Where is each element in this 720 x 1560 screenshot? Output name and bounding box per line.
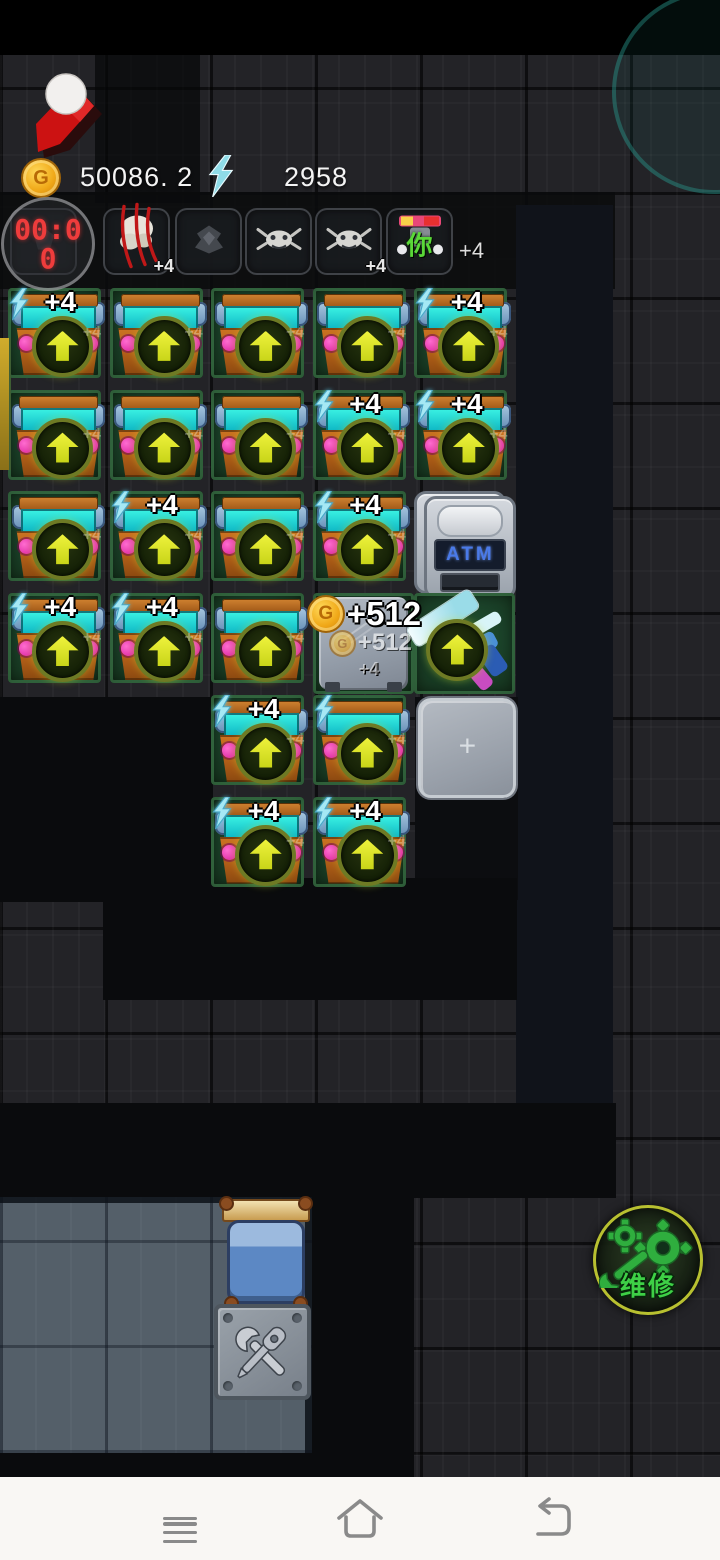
- chest-cell-r1c3[interactable]: +4: [211, 288, 304, 378]
- coin-counter: 50086. 2: [80, 162, 193, 193]
- boss-glyph: 你: [406, 226, 432, 263]
- atm-screen: ATM: [434, 539, 506, 571]
- chest-watermark: +4: [286, 731, 304, 749]
- chest-cell-r3c4[interactable]: +4 +4: [313, 491, 406, 581]
- lightning-icon: [313, 797, 335, 834]
- up-arrow-icon: [250, 433, 282, 463]
- cell-plus-label: +4: [44, 591, 76, 623]
- cell-plus-label: +4: [451, 388, 483, 420]
- chest-watermark: +4: [184, 426, 202, 444]
- up-arrow-icon: [351, 738, 383, 768]
- chest-watermark: +4: [388, 833, 406, 851]
- item-slot-3[interactable]: [175, 208, 242, 275]
- cell-plus-label: +4: [451, 286, 483, 318]
- upgrade-chest-sprite: +4: [317, 294, 410, 384]
- upgrade-chest-sprite: +4: [12, 396, 105, 486]
- chest-cell-r1c1[interactable]: +4 +4: [8, 288, 101, 378]
- chest-watermark: +4: [286, 426, 304, 444]
- chest-cell-r2c5[interactable]: +4 +4: [414, 390, 507, 480]
- chest-watermark: +4: [184, 324, 202, 342]
- chest-watermark: +4: [388, 527, 406, 545]
- chest-watermark: +4: [388, 324, 406, 342]
- chest-cell-r3c3[interactable]: +4: [211, 491, 304, 581]
- crab-monster-icon: [256, 219, 302, 264]
- atm-cash-slot: [440, 573, 500, 592]
- chest-cell-r1c2[interactable]: +4: [110, 288, 203, 378]
- lightning-icon: [110, 593, 132, 630]
- repair-label: 维修: [620, 1266, 676, 1303]
- upgrade-chest-sprite: +4: [215, 294, 308, 384]
- up-arrow-icon: [148, 331, 180, 361]
- cell-plus-label: +4: [44, 286, 76, 318]
- chest-cell-r1c4[interactable]: +4: [313, 288, 406, 378]
- energy-bolt-icon: [206, 155, 236, 197]
- chest-cell-r6c4[interactable]: +4 +4: [313, 797, 406, 887]
- cell-plus-label: +4: [247, 693, 279, 725]
- plus-icon: +: [459, 729, 477, 763]
- lightning-icon: [313, 390, 335, 427]
- atm-cell-r3c5[interactable]: ATM: [414, 491, 506, 594]
- coin-icon: G: [21, 158, 61, 198]
- atm-machine: ATM: [424, 496, 516, 599]
- up-arrow-icon: [441, 634, 473, 664]
- upgrade-chest-sprite: +4: [12, 497, 105, 587]
- back-icon: [527, 1497, 573, 1541]
- cell-plus-label: +4: [349, 795, 381, 827]
- chest-watermark: +4: [184, 629, 202, 647]
- corridor-bottom-left: [0, 1103, 616, 1198]
- up-arrow-icon: [250, 534, 282, 564]
- bed-headboard: [222, 1199, 310, 1222]
- chest-cell-r3c2[interactable]: +4 +4: [110, 491, 203, 581]
- upgrade-chest-sprite: +4: [114, 294, 207, 384]
- crystal-upgrade-item: [414, 593, 515, 694]
- upgrade-chest-sprite: +4: [114, 396, 207, 486]
- up-arrow-icon: [250, 331, 282, 361]
- android-nav-bar: [0, 1477, 720, 1560]
- chest-watermark: +4: [83, 426, 101, 444]
- lightning-icon: [8, 593, 30, 630]
- cell-plus-label: +4: [349, 489, 381, 521]
- up-arrow-icon: [47, 534, 79, 564]
- repair-button[interactable]: 维修: [593, 1205, 703, 1315]
- empty-placement-tile: +: [418, 698, 516, 798]
- upgrade-chest-sprite: +4: [215, 599, 308, 689]
- item-slot-2[interactable]: +4: [103, 208, 170, 275]
- chest-watermark: +4: [388, 426, 406, 444]
- cell-plus-label: +4: [247, 795, 279, 827]
- up-arrow-icon: [351, 433, 383, 463]
- up-arrow-icon: [148, 433, 180, 463]
- game-screen: G 50086. 2 2958 00:00 +4+4你 +4 +4 +4 +4: [0, 0, 720, 1560]
- upgrade-chest-sprite: +4: [215, 396, 308, 486]
- home-button[interactable]: [300, 1477, 420, 1560]
- cell-plus-label: +4: [349, 388, 381, 420]
- up-arrow-icon: [148, 636, 180, 666]
- chest-cell-r6c3[interactable]: +4 +4: [211, 797, 304, 887]
- chest-cell-r2c3[interactable]: +4: [211, 390, 304, 480]
- coin-icon: G: [329, 630, 356, 657]
- chest-watermark: +4: [286, 629, 304, 647]
- upgrade-chest-sprite: +4: [215, 497, 308, 587]
- corridor-right: [516, 205, 613, 1183]
- bed[interactable]: [222, 1199, 310, 1311]
- chest-watermark: +4: [83, 527, 101, 545]
- up-arrow-icon: [148, 534, 180, 564]
- coin-gain-echo: +512: [358, 629, 412, 657]
- shadow-room-bottom: [0, 1450, 414, 1477]
- lightning-icon: [313, 695, 335, 732]
- minor-gain-text: +4: [359, 659, 427, 680]
- crystal-cell-r4c5[interactable]: [414, 593, 515, 694]
- side-door: [0, 338, 11, 470]
- item-slot-5[interactable]: +4: [315, 208, 382, 275]
- up-arrow-icon: [250, 636, 282, 666]
- item-slot-6[interactable]: 你: [386, 208, 453, 275]
- menu-button[interactable]: [120, 1477, 240, 1560]
- bed-blanket: [227, 1220, 305, 1304]
- merge-grid: +4 +4 +4 +4 +4: [8, 288, 517, 899]
- chest-watermark: +4: [489, 324, 507, 342]
- back-button[interactable]: [490, 1477, 610, 1560]
- chest-cell-r3c1[interactable]: +4: [8, 491, 101, 581]
- status-bar: [0, 0, 720, 55]
- energy-counter: 2958: [284, 162, 348, 193]
- cell-plus-label: +4: [146, 591, 178, 623]
- lightning-icon: [211, 797, 233, 834]
- up-arrow-icon: [250, 839, 282, 869]
- item-slot-4[interactable]: [245, 208, 312, 275]
- chest-watermark: +4: [184, 527, 202, 545]
- empty-cell-r5c5[interactable]: +: [414, 695, 515, 796]
- lightning-icon: [110, 491, 132, 528]
- chest-watermark: +4: [286, 527, 304, 545]
- chest-cell-r5c3[interactable]: +4 +4: [211, 695, 304, 785]
- up-arrow-icon: [351, 331, 383, 361]
- chest-cell-r1c5[interactable]: +4 +4: [414, 288, 507, 378]
- lightning-icon: [8, 288, 30, 325]
- up-arrow-icon: [351, 839, 383, 869]
- lightning-icon: [414, 288, 436, 325]
- slot-plus-label: +4: [153, 256, 174, 277]
- chest-watermark: +4: [388, 731, 406, 749]
- chest-cell-r2c1[interactable]: +4: [8, 390, 101, 480]
- crafting-table[interactable]: [214, 1304, 311, 1400]
- chest-watermark: +4: [286, 324, 304, 342]
- lightning-icon: [414, 390, 436, 427]
- home-icon: [333, 1494, 387, 1544]
- chest-cell-r4c3[interactable]: +4: [211, 593, 304, 683]
- up-arrow-icon: [250, 738, 282, 768]
- up-arrow-icon: [47, 433, 79, 463]
- player-marker-icon: [14, 62, 106, 166]
- moth-monster-icon: [187, 219, 231, 264]
- coin-reward-popup: G+512 G+512 +4: [307, 595, 427, 680]
- chest-watermark: +4: [489, 426, 507, 444]
- chest-cell-r4c2[interactable]: +4 +4: [110, 593, 203, 683]
- slot-plus-label: +4: [365, 256, 386, 277]
- up-arrow-icon: [453, 331, 485, 361]
- coin-gain-text: +512: [347, 595, 421, 633]
- up-arrow-icon: [47, 331, 79, 361]
- up-arrow-icon: [351, 534, 383, 564]
- chest-cell-r2c2[interactable]: +4: [110, 390, 203, 480]
- wave-timer: 00:00: [1, 197, 95, 291]
- reward-cell-r4c4[interactable]: G+512 G+512 +4: [313, 593, 414, 694]
- slot-row-plus-label: +4: [459, 238, 484, 264]
- coin-icon: G: [307, 595, 345, 633]
- chest-cell-r2c4[interactable]: +4 +4: [313, 390, 406, 480]
- cell-plus-label: +4: [146, 489, 178, 521]
- up-arrow-icon: [47, 636, 79, 666]
- chest-watermark: +4: [83, 629, 101, 647]
- chest-watermark: +4: [83, 324, 101, 342]
- lightning-icon: [211, 695, 233, 732]
- corridor-room-right: [312, 1190, 414, 1478]
- chest-cell-r4c1[interactable]: +4 +4: [8, 593, 101, 683]
- chest-cell-r5c4[interactable]: +4: [313, 695, 406, 785]
- lightning-icon: [313, 491, 335, 528]
- up-arrow-icon: [453, 433, 485, 463]
- chest-watermark: +4: [286, 833, 304, 851]
- wrench-screwdriver-icon: [218, 1308, 307, 1396]
